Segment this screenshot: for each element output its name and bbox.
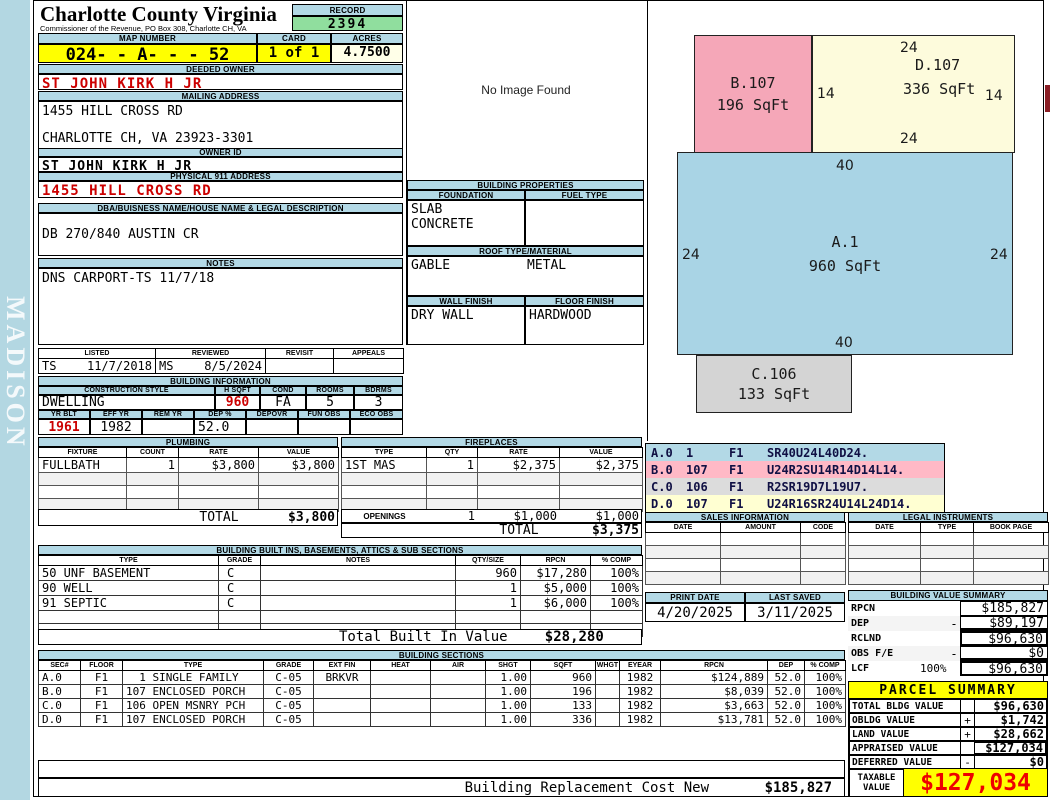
bdrms-label: BDRMS	[354, 386, 403, 395]
dba-value: DB 270/840 AUSTIN CR	[38, 213, 403, 256]
column-header: RATE	[179, 448, 259, 458]
column-header: FIXTURE	[39, 448, 127, 458]
replacement-cost-label: Building Replacement Cost New	[465, 780, 709, 796]
parcel-summary-row: LAND VALUE + $28,662	[849, 727, 1047, 741]
last-saved-label: LAST SAVED	[745, 592, 845, 603]
yrblt-label: YR BLT	[38, 410, 90, 419]
no-image-message: No Image Found	[481, 83, 570, 97]
cond-label: COND	[260, 386, 306, 395]
value-summary: RPCN $185,827 DEP - $89,197 RCLND $96,63…	[848, 601, 1048, 676]
construction-style-label: CONSTRUCTION STYLE	[38, 386, 215, 395]
column-header: HEAT	[371, 661, 431, 671]
physical-address-label: PHYSICAL 911 ADDRESS	[38, 172, 403, 181]
table-row	[849, 572, 1049, 585]
column-header: DEP	[768, 661, 805, 671]
card-value: 1 of 1	[257, 44, 331, 63]
floor-finish-label: FLOOR FINISH	[525, 296, 644, 306]
sketch-b-sqft: 196 SqFt	[717, 96, 789, 114]
sales-title: SALES INFORMATION	[645, 512, 845, 522]
deeded-owner-label: DEEDED OWNER	[38, 64, 403, 74]
no-image-panel: No Image Found	[407, 0, 645, 180]
wall-finish-label: WALL FINISH	[407, 296, 525, 306]
table-row	[646, 559, 846, 572]
last-saved-value: 3/11/2025	[745, 603, 845, 622]
sketch-d-dim-right: 14	[985, 88, 1003, 104]
building-properties-title: BUILDING PROPERTIES	[407, 180, 644, 190]
column-header: % COMP	[591, 556, 643, 566]
column-header: TYPE	[123, 661, 264, 671]
sketch-c-label: C.106	[751, 365, 796, 383]
column-header: QTY/SIZE	[456, 556, 521, 566]
table-row	[646, 546, 846, 559]
column-header: DATE	[646, 523, 721, 533]
dep-label: DEP %	[194, 410, 246, 419]
table-row	[646, 572, 846, 585]
value-summary-row: OBS F/E - $0	[848, 646, 1048, 661]
table-row: A.0F1 1 SINGLE FAMILYC-05BRKVR1.00960198…	[39, 671, 846, 685]
table-row: B.0F1107 ENCLOSED PORCHC-051.001961982$8…	[39, 685, 846, 699]
sketch-section-a: A.1 960 SqFt	[677, 152, 1013, 355]
reviewed-by: MS	[159, 359, 173, 373]
mailing-address-label: MAILING ADDRESS	[38, 91, 403, 101]
floor-finish-value: HARDWOOD	[525, 306, 644, 345]
column-header: TYPE	[342, 448, 427, 458]
wall-finish-value: DRY WALL	[407, 306, 525, 345]
physical-address-value: 1455 HILL CROSS RD	[38, 181, 403, 198]
map-number-label: MAP NUMBER	[38, 33, 257, 44]
plumbing-title: PLUMBING	[38, 437, 338, 447]
column-header: EYEAR	[620, 661, 661, 671]
table-row: TS11/7/2018 MS8/5/2024	[39, 359, 404, 374]
sketch-c-sqft: 133 SqFt	[738, 385, 810, 403]
fireplaces-title: FIREPLACES	[341, 437, 642, 447]
sketch-section-c: C.106 133 SqFt	[696, 355, 852, 413]
sketch-a-dim-bottom: 40	[835, 335, 853, 351]
deeded-owner-value: ST JOHN KIRK H JR	[38, 74, 403, 90]
revisit-value	[266, 359, 334, 374]
column-header: REVIEWED	[156, 349, 266, 359]
sketch-d-dim-left: 14	[817, 86, 835, 102]
sketch-section-b: B.107 196 SqFt	[694, 35, 812, 153]
taxable-value-row: TAXABLE VALUE $127,034	[849, 769, 1047, 797]
table-row: 50 UNF BASEMENTC960$17,280100%	[39, 566, 643, 581]
roof-value: GABLE METAL	[407, 256, 644, 296]
sketch-codes: A.01F1SR40U24L40D24. B.0107F1U24R2SU14R1…	[645, 443, 945, 513]
sales-table: DATEAMOUNTCODE	[645, 522, 846, 585]
fireplaces-total-row: TOTAL $3,375	[341, 523, 642, 538]
sketch-d-label: D.107	[915, 56, 960, 74]
table-row	[39, 611, 643, 624]
remyr-value	[142, 419, 194, 435]
column-header: TYPE	[39, 556, 219, 566]
remyr-label: REM YR	[142, 410, 194, 419]
table-row: D.0F1107 ENCLOSED PORCHC-051.003361982$1…	[39, 713, 846, 727]
vector-code: U24R16SR24U14L24D14.	[767, 497, 912, 511]
plumbing-table: FIXTURECOUNTRATEVALUEFULLBATH1$3,800$3,8…	[38, 447, 339, 512]
sketch-b-label: B.107	[730, 74, 775, 92]
column-header: DATE	[849, 523, 921, 533]
sketch-d-sqft: 336 SqFt	[903, 80, 975, 98]
fuel-type-label: FUEL TYPE	[525, 190, 644, 200]
ecoobs-label: ECO OBS	[350, 410, 403, 419]
column-header: RPCN	[521, 556, 591, 566]
notes-label: NOTES	[38, 258, 403, 268]
rooms-value: 5	[306, 395, 354, 410]
table-row: FULLBATH1$3,800$3,800	[39, 458, 339, 473]
construction-style-value: DWELLING	[38, 395, 215, 410]
value-summary-row: LCF 100% $96,630	[848, 661, 1048, 676]
builtins-table: TYPEGRADENOTESQTY/SIZERPCN% COMP50 UNF B…	[38, 555, 643, 637]
listed-by: TS	[42, 359, 56, 373]
column-header: LISTED	[39, 349, 156, 359]
sketch-divider	[647, 0, 648, 441]
funobs-value	[298, 419, 350, 435]
sketch-a-dim-left: 24	[682, 247, 700, 263]
sketch-a-dim-top: 40	[836, 158, 854, 174]
parcel-summary-row: DEFERRED VALUE - $0	[849, 755, 1047, 769]
table-row	[39, 486, 339, 499]
sketch-code-row: C.0106F1R2SR19D7L19U7.	[646, 478, 944, 495]
effyr-label: EFF YR	[90, 410, 142, 419]
taxable-value-label: TAXABLE VALUE	[849, 769, 904, 797]
rooms-label: ROOMS	[306, 386, 354, 395]
cond-value: FA	[260, 395, 306, 410]
print-date-label: PRINT DATE	[645, 592, 745, 603]
plumbing-total-row: TOTAL $3,800	[38, 509, 338, 526]
column-header: CODE	[801, 523, 846, 533]
table-row	[849, 533, 1049, 546]
column-header: FLOOR	[81, 661, 123, 671]
ecoobs-value	[350, 419, 403, 435]
sketch-code-row: D.0107F1U24R16SR24U14L24D14.	[646, 495, 944, 512]
reviewed-date: 8/5/2024	[204, 359, 262, 373]
effyr-value: 1982	[90, 419, 142, 435]
sketch-d-dim-bottom: 24	[900, 131, 918, 147]
sketch-a-dim-right: 24	[990, 247, 1008, 263]
column-header: TYPE	[921, 523, 974, 533]
fireplaces-total-value: $3,375	[560, 523, 639, 538]
roof-type-value: GABLE	[411, 258, 527, 294]
column-header: GRADE	[264, 661, 314, 671]
notes-value: DNS CARPORT-TS 11/7/18	[38, 268, 403, 345]
card-label: CARD	[257, 33, 331, 44]
parcel-summary-row: TOTAL BLDG VALUE $96,630	[849, 699, 1047, 713]
roof-material-value: METAL	[527, 258, 566, 294]
parcel-summary: PARCEL SUMMARY TOTAL BLDG VALUE $96,630 …	[848, 681, 1048, 797]
mailing-address-box: 1455 HILL CROSS RD CHARLOTTE CH, VA 2392…	[38, 101, 403, 149]
madison-watermark: MADISON	[0, 248, 30, 498]
fuel-type-value	[525, 200, 644, 246]
column-header: AMOUNT	[721, 523, 801, 533]
legal-title: LEGAL INSTRUMENTS	[848, 512, 1048, 522]
bdrms-value: 3	[354, 395, 403, 410]
building-sections-table: SEC#FLOORTYPEGRADEEXT FINHEATAIRSHGTSQFT…	[38, 660, 846, 727]
commissioner-line: Commissioner of the Revenue, PO Box 308,…	[40, 24, 292, 33]
depovr-label: DEPOVR	[246, 410, 298, 419]
visit-table: LISTED REVIEWED REVISIT APPEALS TS11/7/2…	[38, 348, 404, 374]
plumbing-total-value: $3,800	[259, 510, 335, 525]
plumbing-total-label: TOTAL	[179, 510, 259, 525]
sketch-code-row: A.01F1SR40U24L40D24.	[646, 444, 944, 461]
sections-title: BUILDING SECTIONS	[38, 650, 845, 660]
appeals-value	[334, 359, 404, 374]
table-row	[342, 486, 643, 499]
owner-id-value: ST JOHN KIRK H JR	[38, 157, 403, 172]
record-label: RECORD	[292, 4, 403, 16]
vector-code: U24R2SU14R14D14L14.	[767, 463, 904, 477]
vector-code: R2SR19D7L19U7.	[767, 480, 868, 494]
column-header: BOOK PAGE	[974, 523, 1049, 533]
sections-empty-row	[38, 760, 845, 778]
record-value: 2394	[292, 16, 403, 31]
parcel-summary-title: PARCEL SUMMARY	[849, 682, 1047, 699]
value-summary-row: DEP - $89,197	[848, 616, 1048, 631]
column-header: EXT FIN	[314, 661, 371, 671]
column-header: REVISIT	[266, 349, 334, 359]
column-header: % COMP	[805, 661, 846, 671]
builtins-total-label: Total Built In Value	[339, 629, 508, 645]
column-header: SEC#	[39, 661, 81, 671]
depovr-value	[246, 419, 298, 435]
openings-value: $1,000	[560, 509, 639, 523]
taxable-value-amount: $127,034	[904, 769, 1047, 797]
hsqft-label: H SQFT	[215, 386, 260, 395]
foundation-label: FOUNDATION	[407, 190, 525, 200]
owner-id-label: OWNER ID	[38, 148, 403, 157]
roof-label: ROOF TYPE/MATERIAL	[407, 246, 644, 256]
column-header: SHGT	[486, 661, 531, 671]
value-summary-row: RCLND $96,630	[848, 631, 1048, 646]
vector-code: SR40U24L40D24.	[767, 446, 868, 460]
dep-value: 52.0	[194, 419, 246, 435]
column-header: QTY	[427, 448, 478, 458]
column-header: VALUE	[259, 448, 339, 458]
column-header: SQFT	[531, 661, 596, 671]
mailing-address-line1: 1455 HILL CROSS RD	[42, 104, 399, 119]
table-row: 90 WELLC1$5,000100%	[39, 581, 643, 596]
table-row	[849, 559, 1049, 572]
table-row: C.0F1106 OPEN MSNRY PCHC-051.001331982$3…	[39, 699, 846, 713]
foundation-value: SLAB CONCRETE	[407, 200, 525, 246]
sketch-a-label: A.1	[831, 233, 858, 251]
parcel-summary-row: APPRAISED VALUE $127,034	[849, 741, 1047, 755]
yrblt-value: 1961	[38, 419, 90, 435]
table-row	[342, 473, 643, 486]
column-header: RPCN	[661, 661, 768, 671]
table-row: 1ST MAS1$2,375$2,375	[342, 458, 643, 473]
openings-rate: $1,000	[478, 509, 560, 523]
sketch-a-sqft: 960 SqFt	[809, 257, 881, 275]
right-edge-marker	[1045, 85, 1050, 112]
column-header: WHGT	[596, 661, 620, 671]
column-header: NOTES	[261, 556, 456, 566]
column-header: COUNT	[127, 448, 179, 458]
fireplaces-openings-row: OPENINGS 1 $1,000 $1,000	[341, 509, 642, 523]
fireplaces-table: TYPEQTYRATEVALUE1ST MAS1$2,375$2,375	[341, 447, 643, 512]
hsqft-value: 960	[215, 395, 260, 410]
openings-label: OPENINGS	[342, 512, 427, 521]
table-row	[849, 546, 1049, 559]
acres-label: ACRES	[331, 33, 403, 44]
column-header: VALUE	[560, 448, 643, 458]
builtins-title: BUILDING BUILT INS, BASEMENTS, ATTICS & …	[38, 545, 642, 555]
parcel-summary-row: OBLDG VALUE + $1,742	[849, 713, 1047, 727]
dba-label: DBA/BUISNESS NAME/HOUSE NAME & LEGAL DES…	[38, 203, 403, 213]
replacement-cost-row: Building Replacement Cost New $185,827	[38, 778, 845, 797]
legal-table: DATETYPEBOOK PAGE	[848, 522, 1049, 585]
print-date-value: 4/20/2025	[645, 603, 745, 622]
builtins-total-value: $28,280	[508, 629, 641, 645]
listed-date: 11/7/2018	[87, 359, 152, 373]
acres-value: 4.7500	[331, 44, 403, 63]
column-header: AIR	[431, 661, 486, 671]
map-number-value: 024- - A- - - 52	[38, 44, 257, 63]
fireplaces-total-label: TOTAL	[478, 523, 560, 538]
replacement-cost-value: $185,827	[709, 780, 844, 796]
mailing-address-line2: CHARLOTTE CH, VA 23923-3301	[42, 131, 399, 146]
table-row	[39, 473, 339, 486]
openings-qty: 1	[427, 509, 478, 523]
table-row: 91 SEPTICC1$6,000100%	[39, 596, 643, 611]
building-info-title: BUILDING INFORMATION	[38, 376, 403, 386]
column-header: APPEALS	[334, 349, 404, 359]
value-summary-title: BUILDING VALUE SUMMARY	[848, 590, 1048, 601]
column-header: GRADE	[219, 556, 261, 566]
funobs-label: FUN OBS	[298, 410, 350, 419]
sketch-code-row: B.0107F1U24R2SU14R14D14L14.	[646, 461, 944, 478]
sketch-d-dim-top: 24	[900, 40, 918, 56]
builtins-total-row: Total Built In Value $28,280	[38, 629, 642, 645]
value-summary-row: RPCN $185,827	[848, 601, 1048, 616]
table-row	[646, 533, 846, 546]
column-header: RATE	[478, 448, 560, 458]
